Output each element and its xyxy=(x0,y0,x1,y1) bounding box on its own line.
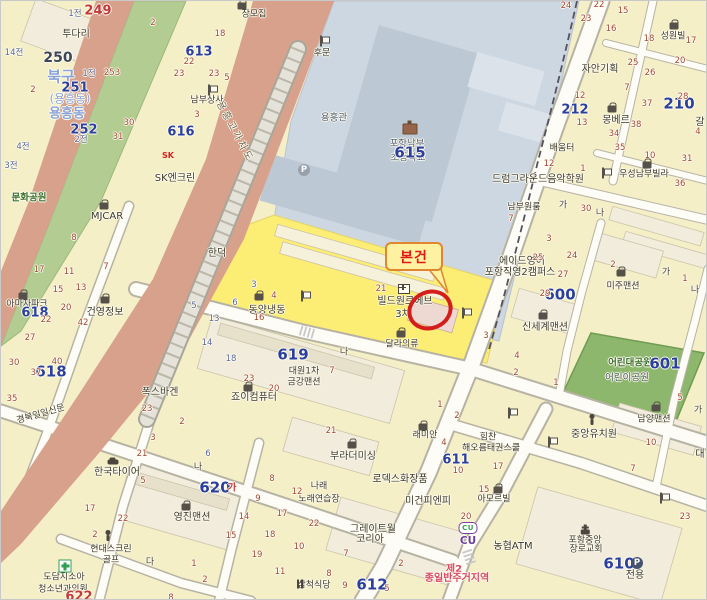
map-label: 노래연습장 xyxy=(298,496,339,505)
parcel-number: 22 xyxy=(184,58,195,67)
parcel-number: 26 xyxy=(645,69,656,78)
parcel-number: 2 xyxy=(398,560,403,569)
parcel-number: 36 xyxy=(675,180,686,189)
parcel-number: 12 xyxy=(544,160,555,169)
parcel-number: 22 xyxy=(41,316,52,325)
parcel-number: 6 xyxy=(232,299,237,308)
parcel-number: 8 xyxy=(168,594,173,600)
parcel-number: 17 xyxy=(277,510,288,519)
parcel-number: 11 xyxy=(64,268,75,277)
parcel-number: 2 xyxy=(179,418,184,427)
parcel-number: 35 xyxy=(7,395,18,404)
parcel-number: 29 xyxy=(540,290,551,299)
parcel-number: 21 xyxy=(137,450,148,459)
map-label: MJCAR xyxy=(91,212,123,222)
car-icon xyxy=(108,460,119,465)
map-label: 로덱스화장품 xyxy=(372,475,427,485)
parcel-number: 7 xyxy=(329,367,334,376)
parcel-number: 27 xyxy=(25,334,36,343)
map-label: 전용 xyxy=(626,571,644,581)
parcel-number: 22 xyxy=(594,1,605,10)
parcel-number: 1 xyxy=(682,275,687,284)
parcel-number: 30 xyxy=(581,205,592,214)
map-label: 폭스바겐 xyxy=(142,388,179,398)
parcel-number: 30 xyxy=(124,119,135,128)
map-label: 드럼그라운드음악학원 xyxy=(492,175,584,185)
map-label: 남양맨션 xyxy=(637,416,670,425)
parcel-number: 23 xyxy=(142,405,153,414)
parcel-number: 2전 xyxy=(74,136,87,145)
parcel-number: 2 xyxy=(513,369,518,378)
parcel-number: 15 xyxy=(53,286,64,295)
parcel-number: 20 xyxy=(61,304,72,313)
parcel-number: 1 xyxy=(580,165,585,174)
parcel-number: 40 xyxy=(52,358,63,367)
parcel-number: 38 xyxy=(631,121,642,130)
parcel-number: 25 xyxy=(533,254,544,263)
parcel-number: 42 xyxy=(78,319,89,328)
shop-icon xyxy=(348,442,357,449)
parcel-number: 6 xyxy=(205,450,210,459)
map-label: 620 xyxy=(199,481,230,496)
map-label: 616 xyxy=(167,126,194,139)
map-label: 615 xyxy=(394,146,425,161)
parcel-number: 34 xyxy=(609,130,620,139)
map-label: 나 xyxy=(340,349,348,358)
parcel-number: 13 xyxy=(209,315,220,324)
map-label: 장로교회 xyxy=(569,546,602,555)
map-label: 도담지소아 xyxy=(43,574,84,583)
parking-icon: P xyxy=(631,557,643,569)
map-label: 힘찬 xyxy=(480,434,497,443)
map-label: 남부원룸 xyxy=(507,204,540,213)
office-icon xyxy=(101,297,110,304)
parcel-number: 4 xyxy=(271,292,276,301)
map-label: 문화공원 xyxy=(12,193,47,203)
parcel-number: 28 xyxy=(678,93,689,102)
parcel-number: 13 xyxy=(577,119,588,128)
map-label: 투다리 xyxy=(62,30,90,40)
map-label: 용흥고가차도 xyxy=(214,100,254,164)
church-icon xyxy=(584,525,587,532)
parcel-number: 1 xyxy=(437,401,442,410)
parcel-number: 17 xyxy=(686,37,697,46)
restaurant-icon xyxy=(297,580,299,589)
parcel-number: 23 xyxy=(680,513,691,522)
parcel-number: 21 xyxy=(326,427,337,436)
parcel-number: 3 xyxy=(251,281,256,290)
map-label: 농협ATM xyxy=(493,542,532,552)
parcel-number: 30 xyxy=(9,359,20,368)
parcel-number: 16 xyxy=(606,25,617,34)
parcel-number: 3전 xyxy=(4,162,17,171)
school-icon xyxy=(403,124,418,135)
parcel-number: 7 xyxy=(630,465,635,474)
map-label: 가 xyxy=(694,407,702,416)
map-label: 경북일일신문 xyxy=(16,404,66,426)
map-label: 가 xyxy=(228,483,237,493)
shop-icon xyxy=(397,331,406,338)
parking-icon: P xyxy=(298,164,310,176)
clinic-cross-icon xyxy=(59,560,72,573)
shop-icon xyxy=(19,293,28,300)
map-label: 종일반주거지역 xyxy=(425,574,489,584)
map-label: 미주맨션 xyxy=(606,283,639,292)
map-label: 자안기획 xyxy=(582,65,619,75)
map-label: 용흥동 xyxy=(49,108,85,121)
parcel-number: 8 xyxy=(326,570,331,579)
building-icon xyxy=(608,106,617,113)
map-label: 영진맨션 xyxy=(174,513,211,523)
building-icon xyxy=(617,270,626,277)
parcel-number: 3 xyxy=(483,332,488,341)
parcel-number: 19 xyxy=(252,551,263,560)
cadastral-map: 투다리장모집후문용흥관포항남부초등학교남부상사SK엔크린문화공원MJCAR한덕아… xyxy=(0,0,707,600)
parcel-number: 18 xyxy=(215,30,226,39)
subject-callout-label: 본건 xyxy=(400,247,428,267)
parcel-number: 2 xyxy=(30,86,35,95)
parcel-number: 3 xyxy=(546,235,551,244)
map-label: 래미안 xyxy=(413,432,438,441)
map-label: 현대스크린 xyxy=(90,546,131,555)
parcel-number: 25 xyxy=(628,59,639,68)
parcel-number: 17 xyxy=(85,505,96,514)
map-label: 대원1차 xyxy=(289,368,320,377)
parcel-number: 35 xyxy=(615,144,626,153)
parcel-number: 13 xyxy=(76,284,87,293)
map-label: 251 xyxy=(61,82,88,95)
map-label: 612 xyxy=(356,578,387,593)
parcel-number: 7 xyxy=(103,263,108,272)
building-icon xyxy=(652,405,661,412)
building-icon xyxy=(643,162,652,169)
map-label: 212 xyxy=(561,104,588,117)
parcel-number: 27 xyxy=(558,271,569,280)
map-label: 한국타이어 xyxy=(94,468,140,478)
parcel-number: 15 xyxy=(479,486,490,495)
parcel-number: 37 xyxy=(642,100,653,109)
signal-flag-icon xyxy=(301,291,303,302)
map-label: 가 xyxy=(662,269,670,278)
map-label: 249 xyxy=(84,5,111,18)
map-label: 용흥관 xyxy=(321,113,347,123)
parcel-number: 2 xyxy=(454,412,459,421)
parcel-number: 8 xyxy=(269,475,274,484)
map-label: 601 xyxy=(649,357,680,372)
golf-icon xyxy=(107,535,110,541)
map-label: 한덕 xyxy=(208,249,226,259)
signal-flag-icon xyxy=(462,308,464,319)
map-label: 나 xyxy=(194,464,202,473)
parcel-number: 5 xyxy=(191,302,196,311)
shop-icon xyxy=(100,203,109,210)
map-label: 619 xyxy=(277,348,308,363)
parcel-number: 20 xyxy=(461,513,472,522)
parcel-number: 4전 xyxy=(16,143,29,152)
parcel-number: 9 xyxy=(255,495,260,504)
signal-flag-icon xyxy=(660,493,662,504)
map-label: SK엔크린 xyxy=(155,174,196,184)
signal-flag-icon xyxy=(548,437,550,448)
parcel-number: 11 xyxy=(275,568,286,577)
parcel-number: 23 xyxy=(174,70,185,79)
signal-flag-icon xyxy=(602,168,604,179)
map-label: 코리아 xyxy=(356,535,384,545)
parcel-number: 23 xyxy=(209,70,220,79)
parcel-number: 22 xyxy=(309,520,320,529)
map-label: 우성남부빌라 xyxy=(619,171,669,180)
parcel-number: 7 xyxy=(508,215,513,224)
parcel-number: 10 xyxy=(453,467,464,476)
parcel-number: 5 xyxy=(224,74,229,83)
map-label: 나 xyxy=(691,287,699,296)
parcel-number: 18 xyxy=(644,35,655,44)
map-label: 나 xyxy=(596,210,604,219)
map-label: 아모르빌 xyxy=(477,496,510,505)
parcel-number: 18 xyxy=(226,355,237,364)
parcel-number: 18 xyxy=(265,531,276,540)
parcel-number: 17 xyxy=(493,463,504,472)
parcel-number: 253 xyxy=(104,69,120,78)
parcel-number: 20 xyxy=(269,385,280,394)
map-label: 후문 xyxy=(314,50,331,59)
map-label: 달라의류 xyxy=(385,341,418,350)
parcel-number: 5 xyxy=(140,477,145,486)
gate-flag-icon xyxy=(320,36,322,47)
parcel-number: 5 xyxy=(677,394,682,403)
landmark-icon xyxy=(398,284,410,294)
parcel-number: 12 xyxy=(292,488,303,497)
building-icon xyxy=(494,487,503,494)
parcel-number: 23 xyxy=(581,15,592,24)
subject-callout: 본건 xyxy=(385,242,443,271)
map-label: 몽베르 xyxy=(602,116,630,126)
map-label: 성원빌 xyxy=(661,33,686,42)
parcel-number: 3 xyxy=(150,434,155,443)
parcel-number: 4 xyxy=(514,352,519,361)
parcel-number: 10 xyxy=(646,439,657,448)
parcel-number: 20 xyxy=(675,57,686,66)
map-label: 622 xyxy=(65,591,92,600)
map-label: 610 xyxy=(603,557,634,572)
parcel-number: 15 xyxy=(618,7,629,16)
shop-icon xyxy=(244,385,253,392)
map-label: 611 xyxy=(442,454,469,467)
parcel-number: 9 xyxy=(342,582,347,591)
map-label: 신세계맨션 xyxy=(522,323,568,333)
building-icon xyxy=(539,313,548,320)
sk-gas-icon: SK xyxy=(162,152,174,160)
map-label: 장모집 xyxy=(242,11,267,20)
parcel-number: 24 xyxy=(567,252,578,261)
parcel-number: 15 xyxy=(226,532,237,541)
parcel-number: 16 xyxy=(254,314,265,323)
parcel-number: 4 xyxy=(441,439,446,448)
map-label: 다 xyxy=(146,559,154,568)
cu-store-icon: CU xyxy=(459,522,478,534)
map-label: 건영정보 xyxy=(87,308,124,318)
parcel-number: 37 xyxy=(31,369,42,378)
parcel-number: 22 xyxy=(118,515,129,524)
parcel-number: 14전 xyxy=(5,49,24,58)
parcel-number: 2 xyxy=(202,576,207,585)
shop-icon xyxy=(238,3,247,10)
kindergarten-icon xyxy=(591,419,594,425)
map-label: 미건피엔피 xyxy=(405,497,451,507)
map-label: CU xyxy=(460,536,476,547)
parcel-number: 1 xyxy=(553,379,558,388)
map-label: 어린대공원 xyxy=(608,358,652,368)
parcel-number: 1전 xyxy=(68,10,81,19)
parcel-number: 21 xyxy=(376,285,387,294)
parcel-number: 7 xyxy=(343,550,348,559)
map-label: 어린이공원 xyxy=(605,373,649,383)
parcel-number: 5 xyxy=(384,585,389,594)
map-labels-layer: 투다리장모집후문용흥관포항남부초등학교남부상사SK엔크린문화공원MJCAR한덕아… xyxy=(1,1,707,600)
parcel-number: 12 xyxy=(575,92,586,101)
parcel-number: 4 xyxy=(695,128,700,137)
parcel-number: 24 xyxy=(561,2,572,11)
map-label: 3차 xyxy=(395,310,411,320)
building-icon xyxy=(670,23,679,30)
parcel-number: 14 xyxy=(239,513,250,522)
signal-flag-icon xyxy=(508,408,510,419)
parcel-number: 1 xyxy=(191,560,196,569)
parcel-number: 14 xyxy=(202,339,213,348)
parcel-number: 250 xyxy=(43,51,72,65)
map-label: 가 xyxy=(559,202,567,211)
building-icon xyxy=(419,424,428,431)
parcel-number: 1전 xyxy=(82,70,95,79)
map-label: 골프 xyxy=(103,557,120,566)
parcel-number: 31 xyxy=(682,155,693,164)
map-label: 대 xyxy=(695,450,704,460)
map-label: 해오름태권스쿨 xyxy=(462,445,520,454)
parcel-number: 7 xyxy=(624,84,629,93)
parcel-number: 2 xyxy=(610,261,615,270)
parcel-number: 31 xyxy=(113,133,124,142)
map-label: 배움터 xyxy=(550,145,575,154)
parcel-number: 10 xyxy=(294,543,305,552)
signal-flag-icon xyxy=(208,85,210,96)
parcel-number: 2 xyxy=(150,19,155,28)
map-label: 나래 xyxy=(311,483,328,492)
building-icon xyxy=(182,504,191,511)
map-label: 중앙유치원 xyxy=(571,430,617,440)
map-label: 포항직영2캠퍼스 xyxy=(485,268,556,278)
parcel-number: 3 xyxy=(194,111,199,120)
map-label: 금강맨션 xyxy=(287,379,320,388)
parcel-number: 17 xyxy=(34,266,45,275)
map-label: 빌드원르에브 xyxy=(377,297,432,307)
parcel-number: 2 xyxy=(92,531,97,540)
map-label: 부라더미싱 xyxy=(330,452,376,462)
shop-icon xyxy=(255,294,264,301)
parcel-number: 8 xyxy=(71,234,76,243)
map-label: 죠이컴퓨터 xyxy=(231,393,277,403)
